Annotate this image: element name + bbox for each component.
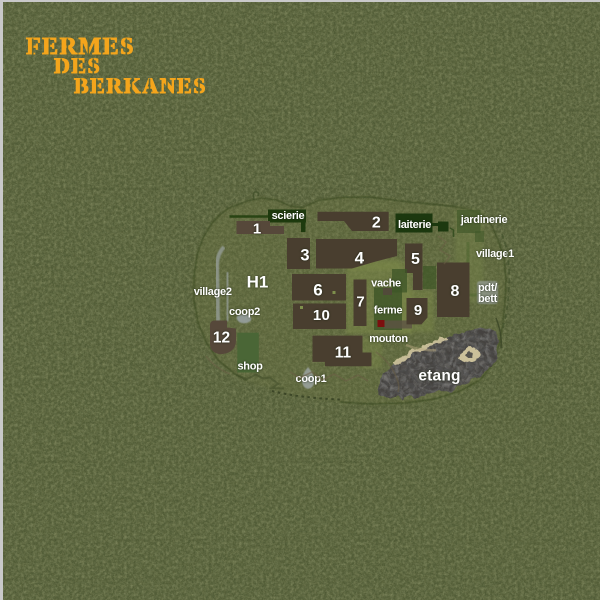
svg-text:vache: vache	[371, 278, 401, 290]
svg-text:7: 7	[356, 294, 364, 311]
svg-text:bett: bett	[478, 293, 498, 305]
svg-text:etang: etang	[418, 368, 460, 385]
svg-text:9: 9	[414, 302, 422, 319]
svg-text:village2: village2	[194, 286, 232, 298]
svg-text:4: 4	[355, 249, 365, 268]
svg-text:2: 2	[372, 215, 381, 232]
svg-text:11: 11	[335, 345, 352, 362]
svg-text:village1: village1	[476, 248, 514, 260]
svg-text:12: 12	[213, 330, 230, 347]
svg-text:1: 1	[253, 220, 261, 237]
svg-text:3: 3	[300, 247, 309, 265]
svg-text:8: 8	[451, 283, 460, 300]
svg-text:shop: shop	[237, 361, 263, 373]
svg-text:H1: H1	[247, 273, 269, 292]
svg-text:jardinerie: jardinerie	[460, 214, 508, 226]
svg-text:laiterie: laiterie	[398, 219, 431, 231]
svg-text:coop2: coop2	[229, 306, 260, 318]
svg-text:5: 5	[411, 251, 420, 268]
svg-text:ferme: ferme	[374, 305, 403, 317]
svg-text:6: 6	[313, 281, 322, 300]
svg-text:BERKANES: BERKANES	[74, 73, 207, 98]
svg-text:10: 10	[313, 307, 330, 324]
svg-text:mouton: mouton	[369, 333, 408, 345]
svg-text:scierie: scierie	[272, 210, 305, 222]
